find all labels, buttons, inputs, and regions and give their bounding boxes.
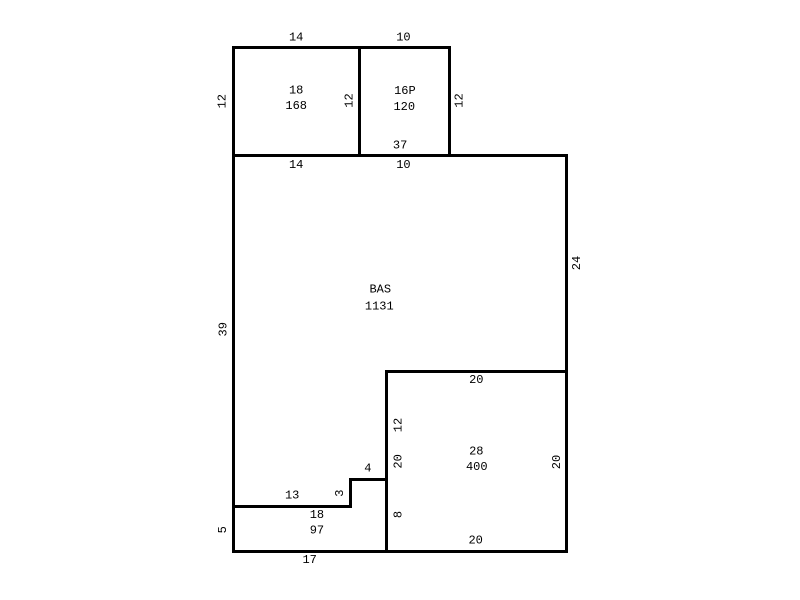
svg-text:400: 400 [466, 460, 488, 474]
svg-text:13: 13 [285, 488, 299, 502]
svg-text:10: 10 [396, 158, 410, 172]
svg-text:16P: 16P [394, 84, 416, 98]
svg-text:120: 120 [393, 100, 415, 114]
svg-text:20: 20 [468, 534, 482, 548]
svg-text:12: 12 [216, 94, 230, 108]
svg-text:18: 18 [310, 508, 324, 522]
svg-text:20: 20 [550, 455, 564, 469]
svg-text:20: 20 [391, 454, 405, 468]
svg-text:5: 5 [216, 526, 230, 533]
svg-text:24: 24 [570, 256, 584, 270]
svg-text:37: 37 [393, 139, 407, 153]
svg-text:14: 14 [289, 158, 303, 172]
svg-text:12: 12 [391, 418, 405, 432]
svg-text:8: 8 [392, 511, 406, 518]
svg-text:97: 97 [310, 523, 324, 537]
svg-text:17: 17 [302, 553, 316, 567]
svg-text:12: 12 [452, 93, 466, 107]
svg-text:3: 3 [333, 490, 347, 497]
svg-text:18: 18 [289, 84, 303, 98]
svg-text:1131: 1131 [365, 300, 394, 314]
svg-text:4: 4 [364, 462, 371, 476]
svg-text:12: 12 [342, 93, 356, 107]
svg-text:168: 168 [285, 99, 307, 113]
svg-text:28: 28 [469, 444, 483, 458]
svg-text:20: 20 [469, 373, 483, 387]
svg-text:14: 14 [289, 31, 303, 45]
svg-text:39: 39 [216, 322, 230, 336]
svg-text:BAS: BAS [369, 282, 391, 296]
svg-text:10: 10 [396, 31, 410, 45]
